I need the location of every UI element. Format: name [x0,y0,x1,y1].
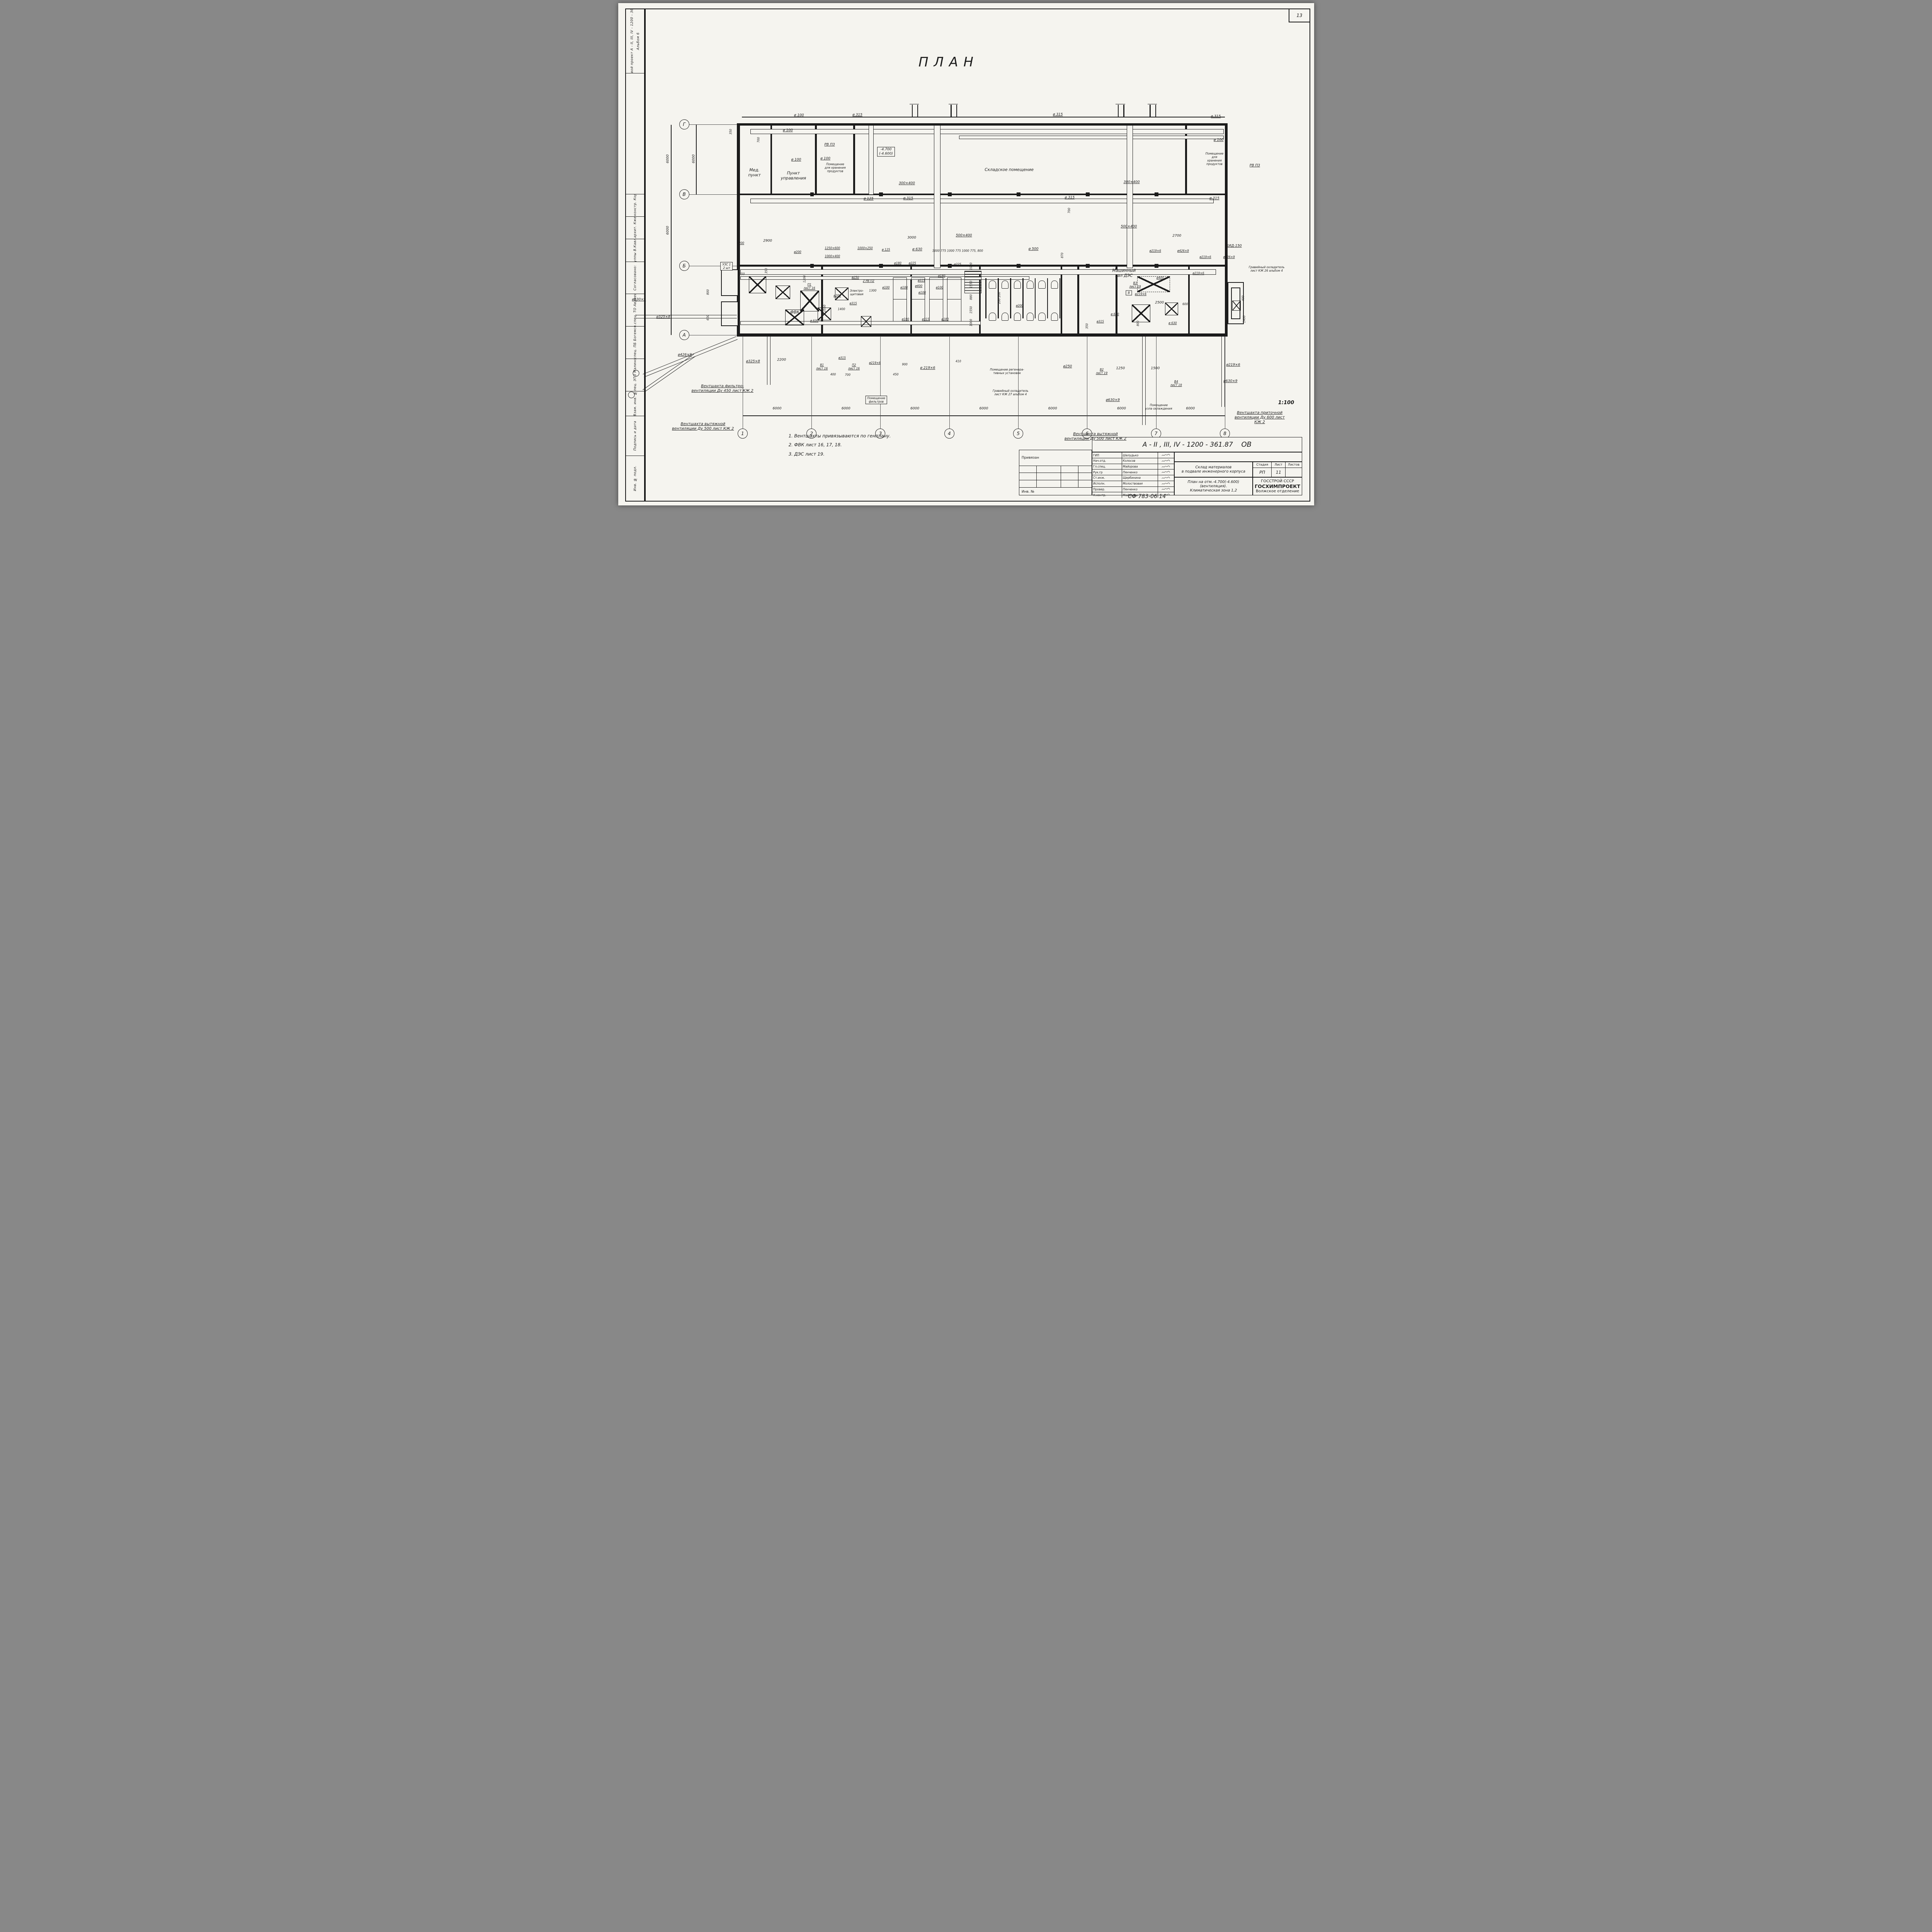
axis-bubble: 4 [944,429,954,439]
signature-row: ГИПШелудько [1092,452,1174,458]
signature-role: Нач.отд. [1092,458,1122,464]
des-unit-dashed [1137,276,1170,292]
pipe [1142,337,1146,425]
annotation-label: ø 630 [912,248,922,252]
annotation-label: 6000 [666,155,670,163]
chimney-cap [1116,104,1125,105]
signature-mark [1158,459,1173,463]
annotation-label: 6000 [842,407,850,411]
annotation-label: 1000×400 [825,255,840,258]
annotation-label: В3 лист 19 [1129,281,1141,288]
annotation-label: В2 лист 19 [1096,368,1107,375]
annotation-label: ø400 [1156,276,1164,280]
annotation-label: 1200 [803,275,806,282]
general-notes: 1. Вентшахты привязываются по генплану.2… [789,432,891,459]
sheet-value: 11 [1272,468,1286,477]
annotation-label: 350 [729,129,733,134]
annotation-label: ø219×6 [1150,249,1161,252]
signature-name: Шелудько [1122,452,1158,458]
annotation-label: 800 [706,289,709,294]
annotation-label: 350 [765,268,768,274]
annotation-label: 700 [845,373,850,377]
equipment [776,286,790,299]
annotation-label: 1000 [969,319,973,326]
annotation-label: ø315 [918,279,925,282]
annotation-label: 250 [739,272,745,276]
column [879,264,883,268]
signature-table: ГИПШелудько Нач.отд.Колосов Гл.спец.Майо… [1092,452,1174,495]
annotation-label: 450 [893,372,898,376]
column [1086,192,1090,196]
annotation-label: В4 лист 19 [1170,380,1182,387]
supply-unit-p1 [800,291,819,311]
annotation-label: РВ ПЗ [1250,164,1260,168]
annotation-label: Вентшахта фильтро- вентиляции Ду 450 лис… [692,384,753,393]
annotation-label: ø 315 [1209,196,1219,201]
axis-bubble: А [679,330,689,340]
parapet [742,117,1225,117]
signature-mark [1158,476,1173,480]
annotation-label: 2500 [1155,301,1164,305]
sheet-label: Лист [1272,462,1286,468]
annotation-label: ø 100 [794,114,804,118]
stairs [964,271,981,293]
annotation-label: 6000 [1117,407,1126,411]
sheets-label: Листов [1286,462,1301,468]
signature-role: Исполн. [1092,481,1122,486]
annotation-label: Гравийный охладитель лист КЖ 27 альбом 4 [993,389,1028,396]
annotation-label: 2200 [777,358,786,362]
annotation-label: 1500 [1151,367,1160,371]
duct [959,136,1224,139]
column [948,192,952,196]
annotation-label: Вентшахта вытяжной вентиляции Ду 500 лис… [672,422,734,431]
annotation-label: ø426×9 [1177,249,1189,252]
partition [1061,265,1063,336]
annotation-label: ø 315 [1065,196,1075,200]
annotation-label: Вентшахта приточной вентиляции Ду 600 ли… [1233,411,1287,425]
chimney [951,105,952,117]
annotation-label: 6000 [910,407,919,411]
signature-name: Майорова [1122,464,1158,469]
sheets-value [1286,468,1301,477]
signature-name: Пянченко [1122,469,1158,475]
annotation-label: 2700 [1172,234,1181,238]
annotation-label: 1250×600 [825,247,840,250]
axis-line [743,336,743,429]
annotation-label: ø219×6 [1226,363,1240,367]
attached-label: Привязан [1019,450,1092,466]
chimney [956,105,957,117]
column [1086,264,1090,268]
annotation-label: ø100 [882,286,889,289]
annotation-label: ø180 [938,274,946,277]
stall-wall [1035,278,1036,318]
signature-name: Щербинина [1122,475,1158,481]
drawing-title: План на отм.-4.700(-4.600) (вентиляция).… [1174,477,1253,495]
empty-band [1174,452,1302,461]
annotation-label: ø180 [942,317,949,321]
stall-wall [1060,278,1061,318]
annotation-label: 350 [1085,323,1089,329]
annotation-label: УЗС 1 2 шт [721,262,733,270]
annotation-label: 6000 [692,155,696,163]
drawing-sheet: 13 Типовой проект А - II, III, IV - 1200… [618,3,1314,505]
signature-role: Ст.инж. [1092,475,1122,481]
annotation-label: 1300 [869,289,876,292]
column [1155,264,1158,268]
annotation-label: 6000 [1186,407,1195,411]
annotation-label: 1250 [1116,367,1125,371]
chimney [1155,105,1156,117]
axis-line [811,336,812,429]
chimney [1118,105,1119,117]
annotation-label: 1400 [838,307,845,311]
duct [750,199,1214,203]
equipment [749,276,766,293]
fixture [989,281,996,289]
annotation-label: 1:100 [1278,400,1294,406]
annotation-label: 1550 [969,281,973,288]
chimney [917,105,918,117]
axis-bubble: В [679,189,689,199]
regen-unit [893,277,907,321]
axis-line [949,336,950,429]
partition [1077,265,1079,336]
fixture [1027,281,1034,289]
annotation-label: 1400 [1243,315,1246,323]
axis-line [1018,336,1019,429]
fixture [989,313,996,321]
column [810,192,814,196]
note-line: 2. ФВК лист 16, 17, 18. [789,440,891,450]
annotation-label: ø219×6 [1193,272,1204,275]
annotation-label: Помещение фильтров [865,396,887,404]
annotation-label: 1000 [969,263,973,270]
fixture [1027,313,1034,321]
annotation-label: РВ ПЗ [825,143,835,147]
annotation-label: ø200 [737,241,744,245]
partition [821,265,823,336]
annotation-label: Помещение для хранения продуктов [825,163,845,173]
annotation-label: 600 [1182,302,1188,306]
annotation-label: ø250 [852,276,859,279]
annotation-label: ø325×8 [656,315,670,319]
axis-line [1156,336,1156,429]
shaft-flange [633,370,639,377]
object-name: Склад материалов в подвале инженерного к… [1174,462,1253,478]
equipment [1232,301,1241,311]
axis-bubble: Г [679,119,689,129]
signature-role: Рук.гр [1092,469,1122,475]
annotation-label: ø315 [922,317,929,321]
signature-role: ГИП [1092,452,1122,458]
axis-line [880,336,881,429]
equipment [861,316,871,327]
annotation-label: 300×400 [1124,180,1140,185]
annotation-label: 700 [1067,208,1071,213]
fixture [1051,281,1058,289]
org-line2: ГОСХИМПРОЕКТ [1255,483,1300,489]
attach-table: Привязан Инв. № [1019,450,1092,495]
annotation-label: Электро- щитовая [850,289,864,296]
annotation-label: Пункт управления [781,171,806,181]
annotation-label: ø 500 [1029,247,1039,252]
annotation-label: ø225 [909,262,916,265]
annotation-label: 410 [956,359,961,363]
annotation-label: В [1126,291,1132,296]
vent-chamber [721,301,738,326]
annotation-label: ø200 [833,294,841,297]
signature-mark [1158,488,1173,491]
column [1017,192,1020,196]
fixture [1014,281,1021,289]
annotation-label: ø200 [1016,304,1023,307]
annotation-label: 6000 [666,226,670,235]
annotation-label: 300×400 [899,181,915,185]
annotation-label: КИД-150 [1226,244,1242,248]
dimension-line [671,125,672,335]
duct-vertical [1127,125,1133,268]
annotation-label: ø 315 [903,196,913,201]
org-line1: ГОССТРОЙ СССР [1261,479,1294,483]
annotation-label: ø225 [954,263,961,266]
stall-wall [1047,278,1048,318]
duct-vertical [934,125,940,268]
annotation-label: Помещение регенера- тивных установок [990,368,1024,375]
signature-name: Молоствовая [1122,481,1158,486]
dimension-line [743,415,1225,416]
annotation-label: ø 125 [882,248,890,252]
annotation-label: Складское помещение [985,167,1034,172]
pipe [767,337,770,385]
column [810,264,814,268]
annotation-label: 900 [902,362,907,366]
annotation-label: 880 [969,294,973,299]
annotation-label: 500×400 [956,233,972,238]
annotation-label: ø180 [902,317,909,321]
attach-grid [1019,466,1092,488]
pipe [1221,337,1225,407]
uzs-chamber [721,269,738,296]
annotation-label: ø 100 [1214,138,1224,142]
chimney [912,105,913,117]
regen-unit [947,277,961,321]
axis-bubble: Б [679,261,689,271]
annotation-label: ø426×9 [1223,255,1235,259]
annotation-label: Гравийный охладитель лист КЖ 26 альбом 4 [1249,265,1284,272]
annotation-label: ø315 [850,302,857,305]
doc-mark: ОВ [1241,440,1252,449]
annotation-label: ø219×6 [1200,255,1211,259]
signature-row: Нач.отд.Колосов [1092,458,1174,464]
regen-unit [929,277,943,321]
fixture [1002,313,1009,321]
wall [1225,123,1228,337]
axis-line [688,194,737,195]
doc-number: А - II , III, IV - 1200 - 361.87 [1143,441,1233,449]
fixture [1051,313,1058,321]
annotation-label: ø 630 [810,319,818,322]
stage-value: РП [1253,468,1272,477]
signature-row: Ст.инж.Щербинина [1092,475,1174,481]
annotation-label: ø 100 [820,157,830,161]
annotation-label: 2 РВ П2 [863,279,874,282]
annotation-label: ø426×9 [678,353,692,357]
annotation-label: ФВК [790,310,799,315]
annotation-label: ø 630 [1111,312,1119,316]
signature-row: Рук.грПянченко [1092,469,1174,475]
signature-mark [1158,482,1173,485]
signature-role: Гл.спец. [1092,464,1122,469]
organization: ГОССТРОЙ СССР ГОСХИМПРОЕКТ Волжское отде… [1253,477,1302,495]
chimney [1123,105,1124,117]
axis-bubble: 1 [738,429,748,439]
stage-label: Стадия [1253,462,1272,468]
wall [737,123,1228,126]
stall-wall [985,278,986,318]
axis-line [688,335,737,335]
annotation-label: -4.700 (-4.600) [877,147,895,157]
annotation-label: ø 315 [1211,114,1221,119]
annotation-label: 800 [1136,321,1139,326]
signature-row: Исполн.Молоствовая [1092,481,1174,487]
annotation-label: 6000 [1048,407,1057,411]
signature-mark [1158,471,1173,474]
wall [737,333,1228,336]
partition [1188,265,1190,336]
annotation-label: 1550 [969,306,973,314]
annotation-label: ø315 [1097,320,1104,323]
note-line: 1. Вентшахты привязываются по генплану. [789,432,891,441]
signature-name: Пянченко [1122,487,1158,492]
annotation-label: ø 630 [1168,321,1177,325]
annotation-label: В1 лист 16 [816,363,828,370]
annotation-label: 200 200 [998,292,1001,304]
inv-label: Инв. № [1019,488,1092,496]
axis-line [688,124,737,125]
annotation-label: П2 лист 16 [848,363,860,370]
fixture [1014,313,1021,321]
column [1155,192,1158,196]
annotation-label: ø 125 [864,197,874,201]
annotation-label: ø 100 [783,129,793,133]
annotation-label: ø100 [900,286,908,289]
annotation-label: ø325×8 [746,360,760,364]
stage-table: Стадия Лист Листов РП 11 [1253,462,1302,478]
annotation-label: ø180 [894,262,901,265]
annotation-label: 3000 [907,236,916,240]
annotation-label: Помещение для хранения продуктов [1206,152,1224,166]
annotation-label: 6000 [979,407,988,411]
annotation-label: 1000 775 1000 775 1000 775, 800 [932,249,983,252]
equipment [1132,304,1151,322]
fixture [1002,281,1009,289]
org-line3: Волжское отделение [1256,489,1299,493]
annotation-label: 400 [830,372,836,376]
annotation-label: ø200 [794,250,801,253]
annotation-label: Вентшахта вытяжной вентиляции Ду 500 лис… [1065,432,1126,441]
equipment [1165,303,1178,315]
stall-wall [1022,278,1024,318]
annotation-label: ø250 [1063,365,1072,369]
annotation-label: 2900 [763,239,772,243]
column [948,264,952,268]
signature-name: Колосов [1122,458,1158,464]
shaft-flange [628,392,634,398]
chimney-cap [910,104,919,105]
annotation-label: 700 [757,137,760,142]
annotation-label: 870 [1060,252,1064,258]
annotation-label: ø 315 [852,113,862,117]
stamp-code: СФ 783-06 14 [1128,493,1166,500]
annotation-label: ø219×6 [1135,292,1146,296]
fixture [1038,281,1045,289]
annotation-label: Мед. пункт [748,168,760,178]
annotation-label: П1 лист 16 [804,283,815,290]
annotation-label: 600 [706,315,709,320]
annotation-label: ø100 [918,291,926,294]
signature-row: Провер.Пянченко [1092,487,1174,493]
annotation-label: Помещение узла охлаждения [1145,403,1172,410]
dimension-line [696,125,697,195]
annotation-label: ø100 [936,286,943,289]
chimney-cap [949,104,958,105]
annotation-label: ø630×9 [632,298,646,302]
duct-vertical [869,125,874,195]
annotation-label: 1000×250 [857,247,873,250]
column [1017,264,1020,268]
annotation-label: 400 [1241,296,1245,301]
chimney [1150,105,1151,117]
annotation-label: ø315 [838,356,846,359]
annotation-label: Машинный зал ДЭС [1112,269,1136,278]
column [879,192,883,196]
annotation-label: ø 100 [791,158,801,162]
signature-row: Гл.спец.Майорова [1092,464,1174,470]
signature-mark [1158,465,1173,468]
chimney-cap [1148,104,1157,105]
annotation-label: 6000 [773,407,782,411]
signature-mark [1158,454,1173,457]
annotation-label: ø 315 [1053,112,1063,117]
annotation-label: 2550 [823,305,827,312]
pipe [636,315,737,318]
annotation-label: 500×400 [1121,224,1137,229]
title-block: А - II , III, IV - 1200 - 361.87 ОВ ГИПШ… [1019,437,1302,495]
annotation-label: ø630×9 [1106,398,1120,403]
duct [750,129,1224,134]
annotation-label: ø400 [915,284,922,287]
note-line: 3. ДЭС лист 19. [789,450,891,459]
annotation-label: ø 219×6 [920,366,935,371]
annotation-label: ø219×6 [869,361,881,364]
signature-role: Н.контр. [1092,492,1122,498]
signature-role: Провер. [1092,487,1122,492]
axis-line [1087,336,1087,429]
annotation-label: ø630×9 [1223,379,1237,383]
fixture [1038,313,1045,321]
stall-wall [1010,278,1011,318]
